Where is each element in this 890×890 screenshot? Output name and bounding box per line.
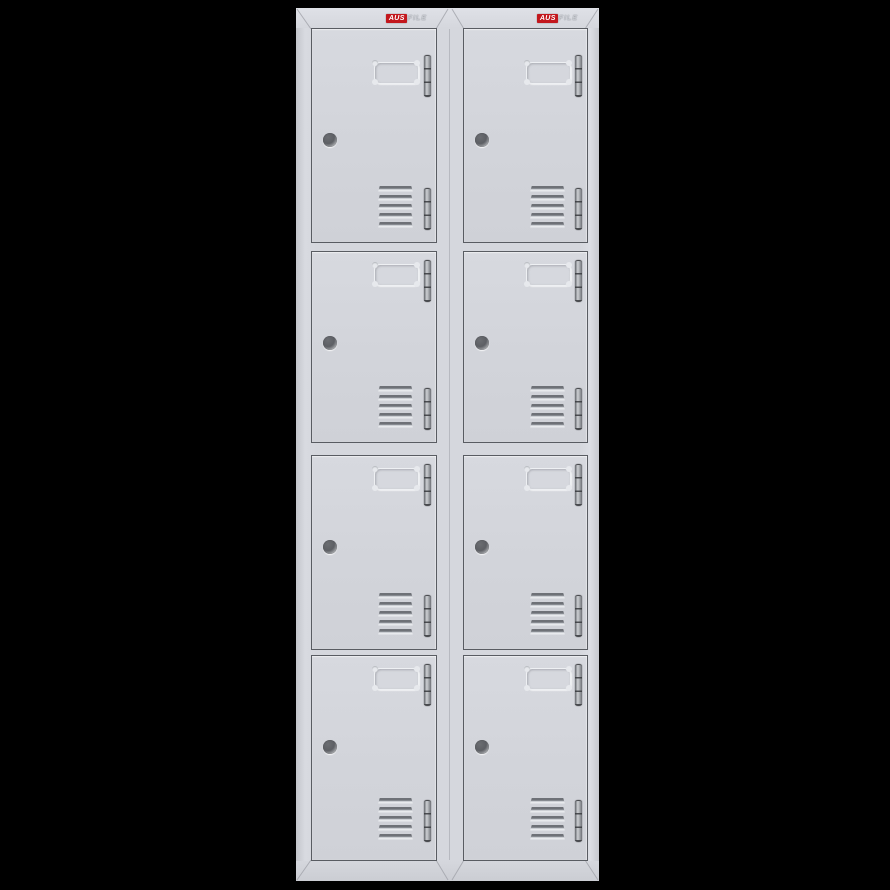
door-hinge-bottom bbox=[575, 800, 582, 842]
vent-grille bbox=[530, 798, 565, 840]
vent-slat bbox=[378, 222, 413, 228]
door-hinge-bottom bbox=[424, 595, 431, 637]
vent-slat bbox=[378, 422, 413, 428]
door-lock bbox=[323, 133, 337, 147]
locker-column-2: AUS FILE bbox=[448, 8, 599, 881]
vent-slat bbox=[378, 386, 413, 392]
locker-door bbox=[311, 655, 437, 861]
brand-aus: AUS bbox=[386, 14, 407, 23]
locker-door bbox=[463, 28, 588, 243]
vent-slat bbox=[378, 816, 413, 822]
vent-slat bbox=[378, 204, 413, 210]
door-lock bbox=[475, 740, 489, 754]
door-hinge-bottom bbox=[575, 388, 582, 430]
door-hinge-bottom bbox=[575, 595, 582, 637]
door-handle bbox=[374, 264, 419, 286]
locker-door bbox=[463, 251, 588, 443]
vent-slat bbox=[530, 629, 565, 635]
brand-file: FILE bbox=[408, 14, 427, 23]
locker-door bbox=[463, 655, 588, 861]
door-hinge-bottom bbox=[424, 388, 431, 430]
vent-slat bbox=[378, 404, 413, 410]
scene: AUS FILE bbox=[0, 0, 890, 890]
locker-column-1: AUS FILE bbox=[296, 8, 448, 881]
door-hinge-top bbox=[575, 664, 582, 706]
door-hinge-top bbox=[424, 55, 431, 97]
door-lock bbox=[475, 336, 489, 350]
vent-slat bbox=[378, 629, 413, 635]
door-hinge-top bbox=[424, 664, 431, 706]
door-hinge-bottom bbox=[424, 188, 431, 230]
vent-slat bbox=[378, 186, 413, 192]
vent-grille bbox=[378, 186, 413, 228]
door-handle bbox=[526, 264, 571, 286]
door-handle bbox=[374, 62, 419, 84]
vent-slat bbox=[530, 195, 565, 201]
door-handle bbox=[374, 468, 419, 490]
vent-slat bbox=[530, 386, 565, 392]
door-hinge-bottom bbox=[424, 800, 431, 842]
vent-slat bbox=[530, 186, 565, 192]
vent-grille bbox=[530, 186, 565, 228]
locker-door bbox=[463, 455, 588, 650]
vent-slat bbox=[378, 602, 413, 608]
vent-grille bbox=[378, 798, 413, 840]
vent-slat bbox=[530, 620, 565, 626]
locker-door bbox=[311, 28, 437, 243]
door-hinge-top bbox=[424, 464, 431, 506]
vent-slat bbox=[530, 593, 565, 599]
vent-slat bbox=[530, 204, 565, 210]
vent-slat bbox=[378, 834, 413, 840]
brand-aus: AUS bbox=[537, 14, 558, 23]
door-lock bbox=[323, 336, 337, 350]
vent-slat bbox=[530, 834, 565, 840]
ausfile-logo: AUS FILE bbox=[537, 14, 578, 23]
vent-slat bbox=[378, 620, 413, 626]
vent-grille bbox=[378, 386, 413, 428]
door-handle bbox=[526, 62, 571, 84]
vent-slat bbox=[530, 222, 565, 228]
vent-slat bbox=[378, 798, 413, 804]
vent-slat bbox=[530, 807, 565, 813]
door-handle bbox=[374, 668, 419, 690]
door-hinge-top bbox=[575, 55, 582, 97]
vent-slat bbox=[530, 213, 565, 219]
door-lock bbox=[475, 133, 489, 147]
door-lock bbox=[475, 540, 489, 554]
vent-slat bbox=[530, 602, 565, 608]
door-hinge-top bbox=[424, 260, 431, 302]
vent-slat bbox=[378, 395, 413, 401]
vent-grille bbox=[530, 386, 565, 428]
ausfile-logo: AUS FILE bbox=[386, 14, 427, 23]
vent-slat bbox=[378, 213, 413, 219]
vent-slat bbox=[378, 807, 413, 813]
locker-cabinet: AUS FILE bbox=[296, 8, 599, 881]
door-handle bbox=[526, 468, 571, 490]
brand-file: FILE bbox=[559, 14, 578, 23]
door-lock bbox=[323, 740, 337, 754]
door-handle bbox=[526, 668, 571, 690]
locker-door bbox=[311, 251, 437, 443]
door-hinge-bottom bbox=[575, 188, 582, 230]
vent-slat bbox=[530, 798, 565, 804]
vent-slat bbox=[530, 413, 565, 419]
vent-grille bbox=[530, 593, 565, 635]
vent-grille bbox=[378, 593, 413, 635]
door-lock bbox=[323, 540, 337, 554]
vent-slat bbox=[530, 825, 565, 831]
door-hinge-top bbox=[575, 260, 582, 302]
vent-slat bbox=[530, 395, 565, 401]
door-hinge-top bbox=[575, 464, 582, 506]
vent-slat bbox=[378, 825, 413, 831]
vent-slat bbox=[530, 404, 565, 410]
vent-slat bbox=[378, 593, 413, 599]
vent-slat bbox=[378, 413, 413, 419]
vent-slat bbox=[530, 422, 565, 428]
locker-door bbox=[311, 455, 437, 650]
vent-slat bbox=[378, 611, 413, 617]
vent-slat bbox=[530, 611, 565, 617]
vent-slat bbox=[530, 816, 565, 822]
vent-slat bbox=[378, 195, 413, 201]
